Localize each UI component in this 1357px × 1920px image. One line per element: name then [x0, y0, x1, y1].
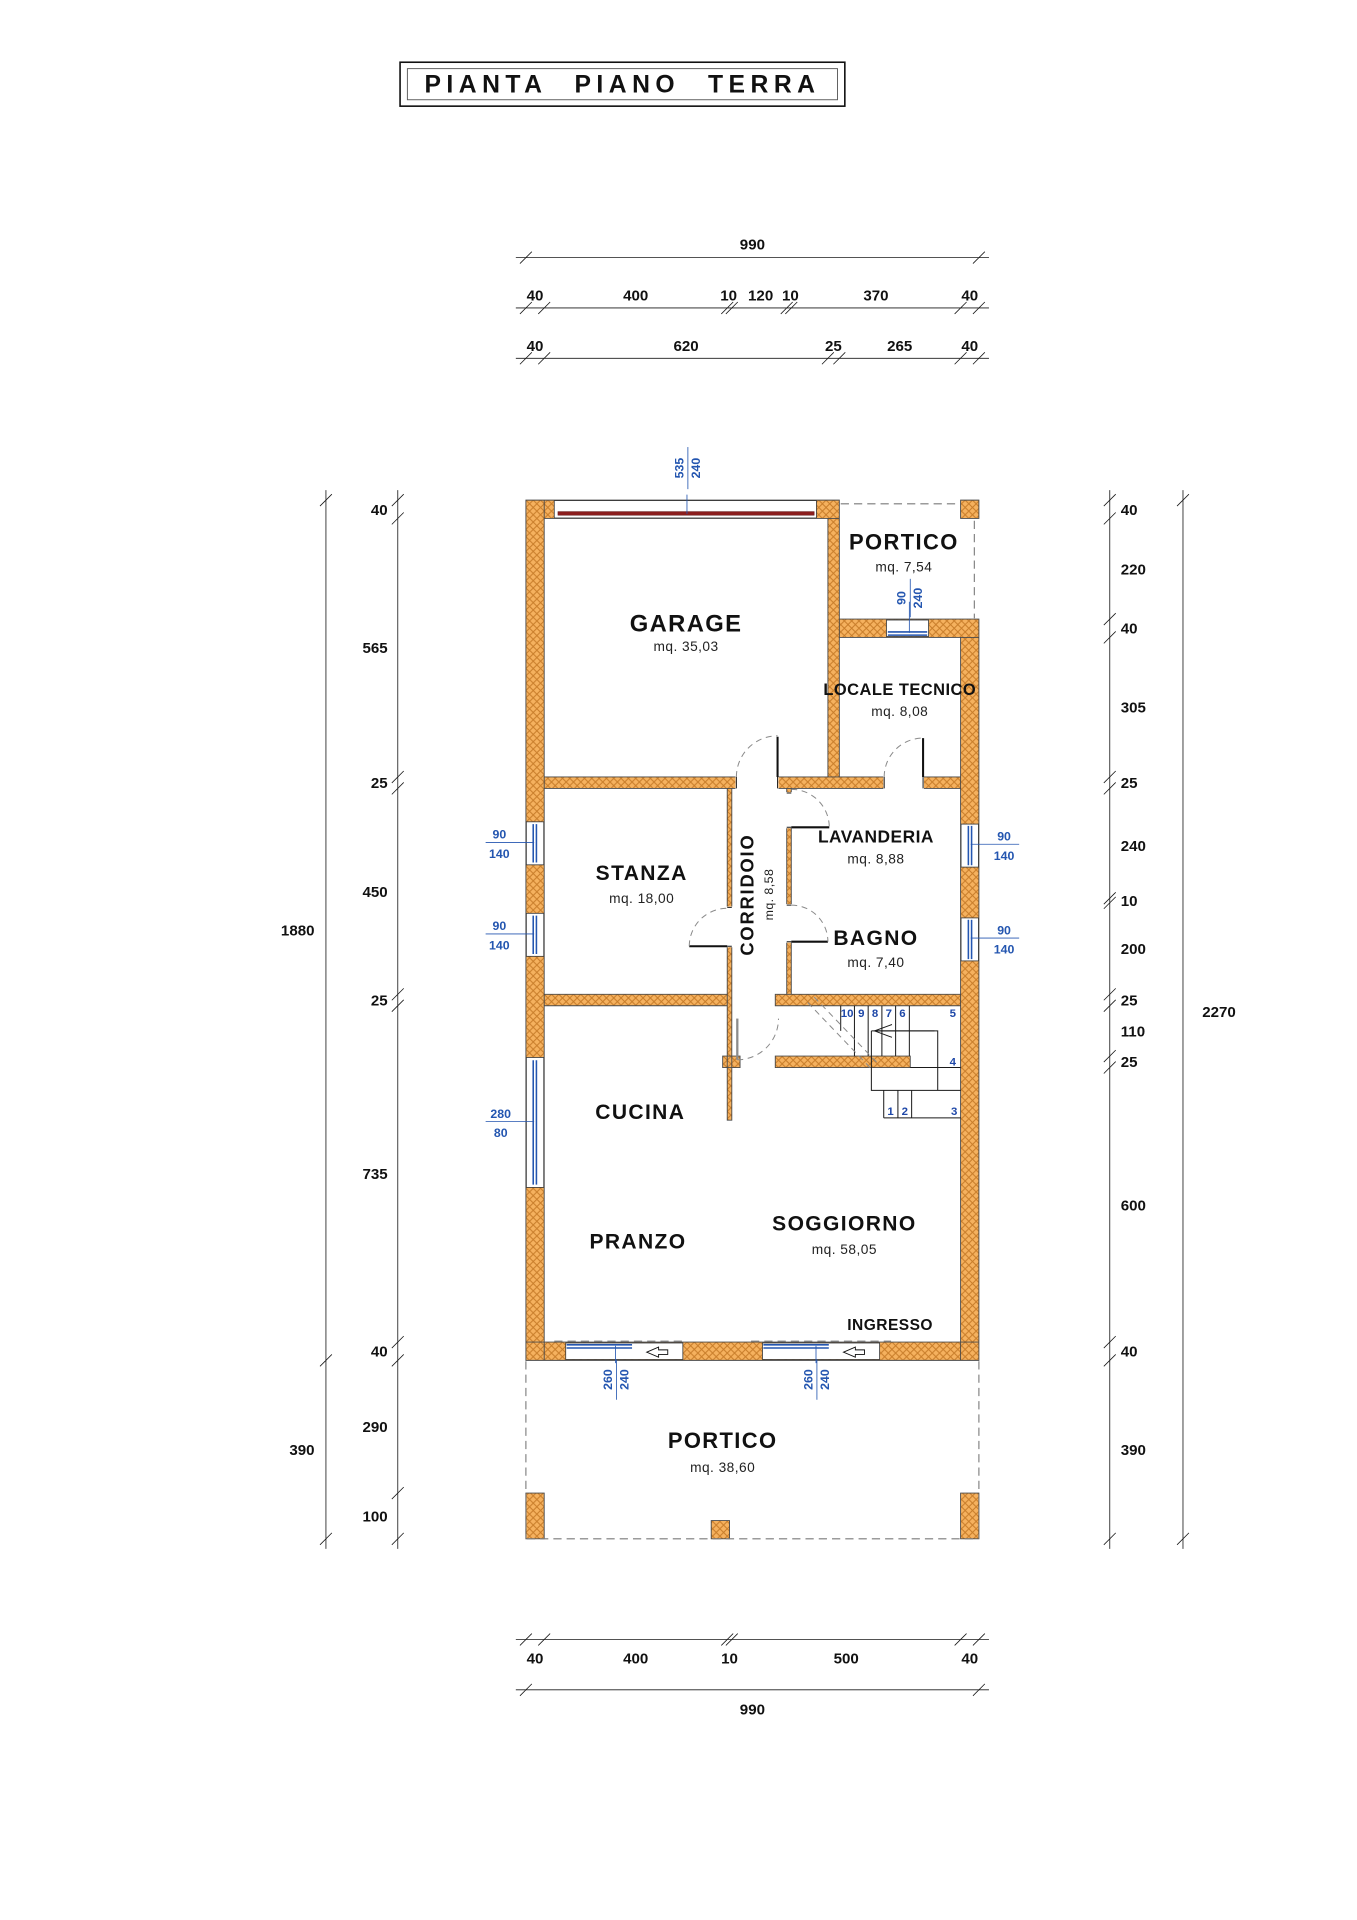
- dim-label: 400: [623, 288, 648, 305]
- opening-height: 140: [489, 938, 510, 952]
- stair-walk-line: [875, 1025, 935, 1038]
- dim-label: 25: [371, 775, 388, 792]
- room-label-ingresso: INGRESSO: [847, 1317, 933, 1334]
- room-label-portico-top: PORTICO: [849, 530, 959, 555]
- dim-label: 40: [527, 288, 544, 305]
- page-title: PIANTA PIANO TERRA: [424, 71, 820, 98]
- garage-door-panel: [558, 512, 814, 516]
- dim-label: 735: [363, 1166, 388, 1183]
- dim-label: 220: [1121, 561, 1146, 578]
- dim-label: 1880: [281, 923, 315, 940]
- stair-number: 6: [899, 1008, 905, 1020]
- opening-height: 240: [818, 1369, 832, 1390]
- stair-number: 8: [872, 1008, 878, 1020]
- dim-label: 265: [887, 338, 912, 355]
- dim-labels-left: 40 565 25 450 25 735 40 290 100 1880 390: [281, 502, 388, 1526]
- dim-label: 390: [289, 1442, 314, 1459]
- title-block: PIANTA PIANO TERRA: [400, 62, 845, 106]
- room-label-garage: GARAGE: [630, 610, 743, 637]
- room-label-pranzo: PRANZO: [589, 1231, 686, 1254]
- stair-number: 9: [858, 1008, 864, 1020]
- room-area-bagno: mq. 7,40: [847, 955, 904, 970]
- dim-label: 40: [1121, 621, 1138, 638]
- window-stanza-2: [526, 913, 543, 956]
- walls: [526, 500, 979, 1539]
- opening-height: 140: [489, 847, 510, 861]
- opening-width: 535: [672, 458, 686, 479]
- portico-door-recess: [886, 620, 928, 636]
- stair-number: 2: [902, 1106, 908, 1118]
- dim-label: 25: [1121, 992, 1138, 1009]
- opening-height: 240: [911, 588, 925, 609]
- stair-number: 10: [841, 1008, 854, 1020]
- room-area-garage: mq. 35,03: [653, 639, 718, 654]
- opening-height: 140: [994, 943, 1015, 957]
- room-area-lavanderia: mq. 8,88: [847, 851, 904, 866]
- wall-shapes: [526, 500, 979, 1539]
- floor-plan-page: PIANTA PIANO TERRA 990 40 400 10 120 10 …: [0, 0, 1357, 1920]
- dim-label: 110: [1121, 1023, 1145, 1040]
- dim-label: 600: [1121, 1197, 1146, 1214]
- garage-door: [554, 501, 816, 518]
- stair-number: 4: [950, 1057, 957, 1069]
- room-label-lavanderia: LAVANDERIA: [818, 826, 934, 846]
- dim-label: 40: [527, 1650, 544, 1667]
- dim-label: 10: [1121, 893, 1138, 910]
- dim-label: 40: [961, 288, 978, 305]
- room-label-portico-bottom: PORTICO: [668, 1428, 778, 1453]
- opening-width: 90: [997, 830, 1011, 844]
- dim-label: 10: [782, 288, 799, 305]
- dim-label: 120: [748, 288, 773, 305]
- dim-label: 25: [825, 338, 842, 355]
- dim-label: 40: [961, 338, 978, 355]
- opening-height: 240: [689, 458, 703, 479]
- room-area-stanza: mq. 18,00: [609, 891, 674, 906]
- dim-label: 390: [1121, 1442, 1146, 1459]
- opening-width: 90: [997, 923, 1011, 937]
- opening-width: 90: [492, 919, 506, 933]
- dim-label: 40: [961, 1650, 978, 1667]
- portico-dashed-boundaries: [526, 504, 979, 1539]
- dim-labels-top: 990 40 400 10 120 10 370 40 40 620 25 26…: [527, 236, 978, 355]
- dim-label: 40: [527, 338, 544, 355]
- window-stanza-1: [526, 822, 543, 865]
- label-window-cucina: 280 80: [490, 1107, 511, 1140]
- dim-label: 290: [363, 1419, 388, 1436]
- label-garage-door: 535 240: [672, 447, 702, 489]
- dim-label: 25: [1121, 1054, 1138, 1071]
- dim-label: 370: [863, 288, 888, 305]
- window-lavanderia: [961, 824, 978, 867]
- dim-label: 40: [1121, 502, 1138, 519]
- stair-number: 1: [887, 1106, 894, 1118]
- dim-label: 305: [1121, 699, 1146, 716]
- dim-label: 450: [363, 884, 388, 901]
- room-area-portico-top: mq. 7,54: [875, 560, 932, 575]
- label-window-lavanderia: 90 140: [994, 830, 1015, 863]
- stair-number: 3: [951, 1106, 957, 1118]
- dim-ticks: [320, 252, 1189, 1696]
- dim-label: 565: [363, 640, 388, 657]
- room-label-stanza: STANZA: [596, 862, 688, 885]
- dim-label: 990: [740, 1702, 765, 1719]
- stair-number: 7: [886, 1008, 892, 1020]
- dim-labels-bottom: 40 400 10 500 40 990: [527, 1650, 978, 1718]
- dim-labels-right: 40 220 40 305 25 240 10 200 25 110 25 60…: [1121, 502, 1236, 1459]
- room-label-cucina: CUCINA: [595, 1101, 685, 1124]
- stair-number: 5: [950, 1008, 957, 1020]
- label-window-bagno: 90 140: [994, 923, 1015, 956]
- dim-label: 10: [721, 1650, 738, 1667]
- label-portico-door: 90 240: [895, 579, 925, 617]
- room-area-locale-tecnico: mq. 8,08: [871, 704, 928, 719]
- opening-height: 240: [617, 1369, 631, 1390]
- dimension-lines: [320, 252, 1189, 1696]
- room-area-portico-bottom: mq. 38,60: [690, 1460, 755, 1475]
- room-area-corridoio-group: mq. 8,58: [762, 869, 776, 921]
- dim-label: 400: [623, 1650, 648, 1667]
- opening-width: 90: [492, 828, 506, 842]
- room-area-corridoio: mq. 8,58: [762, 869, 776, 921]
- opening-width: 280: [490, 1107, 511, 1121]
- label-window-stanza-2: 90 140: [489, 919, 510, 952]
- dim-label: 100: [363, 1508, 388, 1525]
- opening-width: 90: [895, 591, 909, 605]
- dim-label: 2270: [1202, 1004, 1236, 1021]
- window-bagno: [961, 918, 978, 961]
- opening-height: 80: [494, 1126, 508, 1140]
- dim-label: 40: [371, 1344, 388, 1361]
- dim-label: 200: [1121, 941, 1146, 958]
- dim-label: 40: [1121, 1344, 1138, 1361]
- room-label-locale-tecnico: LOCALE TECNICO: [823, 681, 976, 699]
- floor-plan-canvas: PIANTA PIANO TERRA 990 40 400 10 120 10 …: [0, 0, 1357, 1920]
- dim-label: 500: [834, 1650, 859, 1667]
- room-area-soggiorno: mq. 58,05: [812, 1242, 877, 1257]
- dim-label: 240: [1121, 838, 1146, 855]
- room-label-corridoio: CORRIDOIO: [736, 833, 757, 955]
- opening-width: 260: [801, 1369, 815, 1390]
- label-south-door-1: 260 240: [601, 1359, 631, 1399]
- window-cucina: [526, 1057, 543, 1187]
- dim-label: 25: [371, 992, 388, 1009]
- opening-width: 260: [601, 1369, 615, 1390]
- room-label-bagno: BAGNO: [833, 927, 918, 950]
- label-south-door-2: 260 240: [801, 1359, 831, 1399]
- dim-label: 40: [371, 502, 388, 519]
- room-label-soggiorno: SOGGIORNO: [772, 1212, 916, 1235]
- label-window-stanza-1: 90 140: [489, 828, 510, 861]
- dim-label: 25: [1121, 775, 1138, 792]
- opening-height: 140: [994, 849, 1015, 863]
- dim-label: 10: [720, 288, 737, 305]
- dim-label: 620: [673, 338, 698, 355]
- room-label-corridoio-group: CORRIDOIO: [736, 833, 757, 955]
- dim-label: 990: [740, 236, 765, 253]
